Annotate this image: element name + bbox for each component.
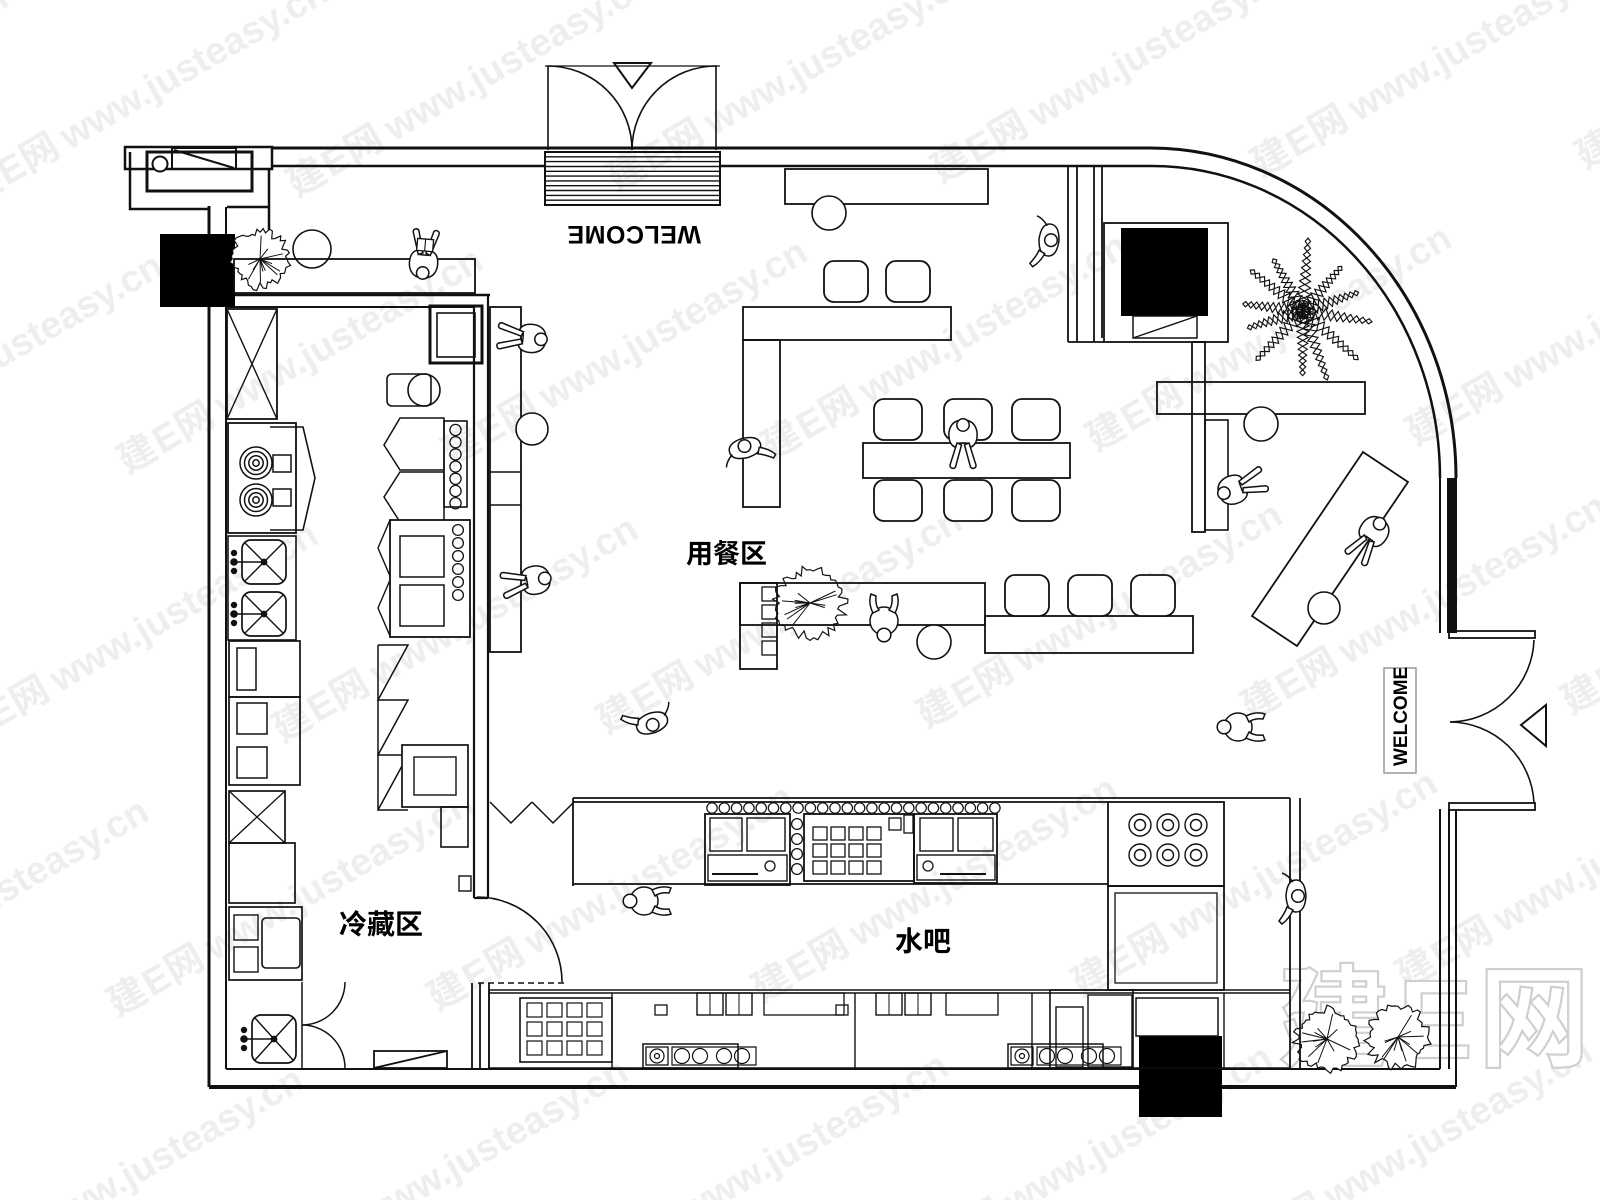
svg-text:WELCOME: WELCOME bbox=[1391, 667, 1412, 766]
svg-text:WELCOME: WELCOME bbox=[567, 220, 701, 248]
